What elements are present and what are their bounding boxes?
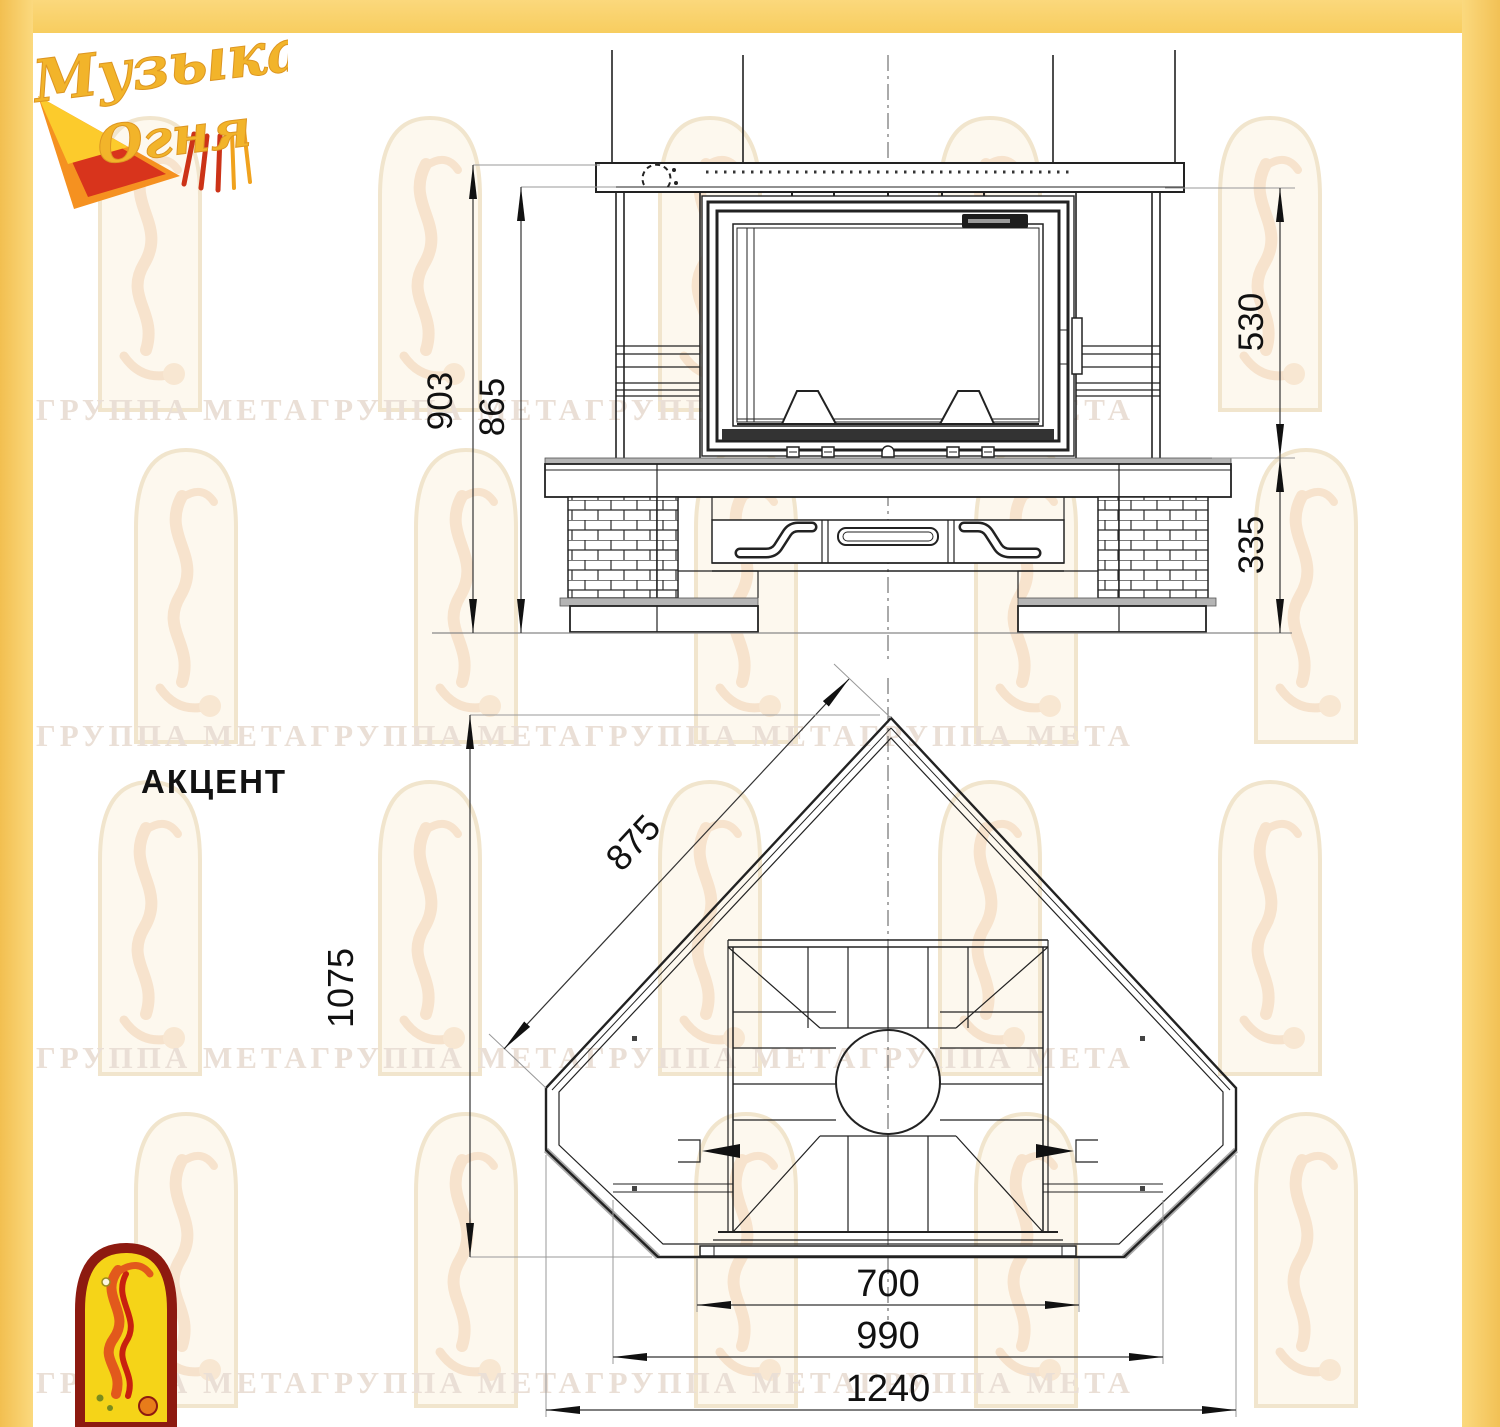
logo-line2: Огня [94, 98, 254, 177]
dim-inner-width-label: 990 [856, 1315, 919, 1357]
model-title: АКЦЕНТ [141, 763, 287, 801]
plan-view-dimensions: 875 1075 700 990 1240 [320, 664, 1236, 1417]
dim-firebox-height-label: 530 [1232, 293, 1271, 351]
dim-slope-width-label: 875 [597, 807, 668, 879]
logo-line1: Музыка [27, 15, 288, 116]
door-handle [1072, 318, 1082, 374]
firebox-door [702, 196, 1082, 456]
dim-depth-label: 1075 [320, 948, 361, 1028]
dim-under-shelf-label: 865 [473, 378, 512, 436]
page: ГРУППА МЕТАГРУППА МЕТАГРУППА МЕТАГРУППА … [0, 0, 1500, 1427]
dim-total-width-label: 1240 [846, 1368, 931, 1410]
company-logo: Музыка Огня [8, 4, 288, 224]
front-view [432, 50, 1500, 660]
hearth-bench [545, 458, 1231, 497]
flame-dancer-emblem [66, 1238, 186, 1427]
dim-base-height-label: 335 [1232, 516, 1271, 574]
dim-opening-width-label: 700 [856, 1263, 919, 1305]
frame-right-band [1462, 0, 1500, 1427]
plan-view [546, 678, 1236, 1320]
dim-total-height-label: 903 [421, 372, 460, 430]
